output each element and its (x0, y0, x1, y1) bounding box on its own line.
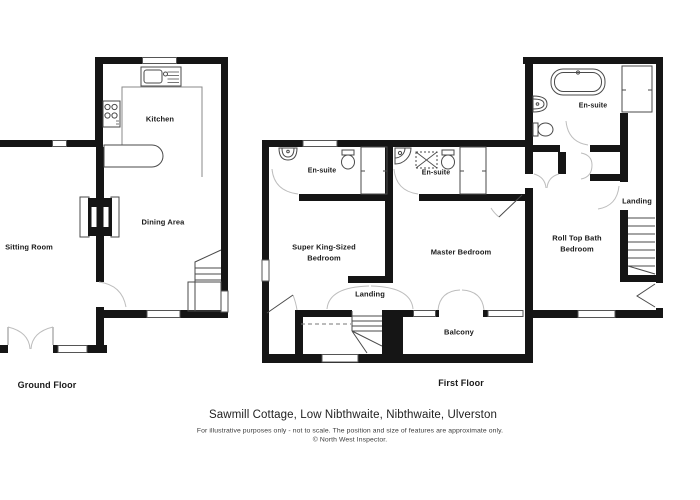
window (221, 291, 228, 312)
window (58, 346, 87, 353)
shower-symbol (622, 66, 652, 112)
window (147, 311, 180, 318)
kitchen-sink-symbol (141, 67, 181, 86)
room-label-landing-rolltop: Landing (622, 197, 652, 206)
first-floor-door-arcs (272, 121, 619, 310)
plan-copyright: © North West Inspector. (313, 437, 387, 444)
room-label-line: Bedroom (292, 253, 356, 264)
window (488, 311, 523, 317)
stair-door-opening (656, 283, 664, 308)
room-label-master: Master Bedroom (431, 248, 492, 257)
room-label-sitting: Sitting Room (5, 243, 53, 252)
french-doors-symbol (8, 327, 53, 349)
room-label-line: Super King-Sized (292, 243, 356, 254)
floor-plan-page: Kitchen Dining Area Sitting Room Ground … (0, 0, 700, 500)
window (578, 311, 615, 318)
door-arc (438, 290, 460, 310)
window (303, 141, 337, 147)
kitchen-peninsula (104, 145, 163, 167)
window (322, 355, 358, 363)
room-label-ensuite-rolltop: En-suite (579, 103, 607, 110)
room-label-rolltop: Roll Top Bath Bedroom (552, 234, 602, 255)
window (143, 58, 177, 64)
door-arc (394, 169, 418, 194)
room-label-landing-main: Landing (355, 290, 385, 299)
plan-disclaimer: For illustrative purposes only - not to … (197, 428, 503, 435)
room-label-kitchen: Kitchen (146, 115, 174, 124)
door-arc (598, 186, 619, 209)
ground-floor-plan (0, 57, 228, 353)
door-arc (581, 153, 592, 165)
door-arc (491, 208, 499, 217)
door-arc (293, 295, 297, 310)
first-floor-stairs-symbol (352, 311, 382, 353)
door-arc (547, 174, 559, 188)
corner-basin-symbol (395, 148, 411, 164)
toilet-symbol (442, 150, 454, 155)
plan-title: Sawmill Cottage, Low Nibthwaite, Nibthwa… (209, 409, 497, 421)
room-label-ensuite-left: En-suite (308, 168, 336, 175)
window (262, 260, 269, 281)
fireplace-symbol (80, 197, 119, 237)
toilet-symbol (533, 123, 538, 136)
right-wing-stairs-symbol (628, 218, 655, 307)
room-label-line: Roll Top Bath (552, 234, 602, 245)
room-label-balcony: Balcony (444, 328, 474, 337)
room-label-line: Bedroom (552, 244, 602, 255)
window (414, 311, 436, 317)
first-floor-right-wing-walls (523, 57, 663, 318)
door-leaf (267, 295, 293, 313)
toilet-symbol (342, 150, 354, 155)
door-arc (566, 121, 588, 145)
door-arc (99, 282, 126, 307)
ensuite-rolltop-fixtures (533, 66, 652, 136)
hob-symbol (103, 101, 120, 127)
floor-label-ground: Ground Floor (18, 380, 77, 390)
floor-label-first: First Floor (438, 378, 484, 388)
basin-symbol (533, 96, 547, 112)
room-label-dining: Dining Area (142, 218, 185, 227)
window (53, 141, 67, 147)
door-arc (272, 169, 298, 194)
door-arc (534, 174, 546, 188)
room-label-super-king: Super King-Sized Bedroom (292, 243, 356, 264)
ground-stairs-symbol (188, 250, 221, 311)
door-arc (462, 290, 484, 310)
room-label-ensuite-master: En-suite (422, 170, 450, 177)
